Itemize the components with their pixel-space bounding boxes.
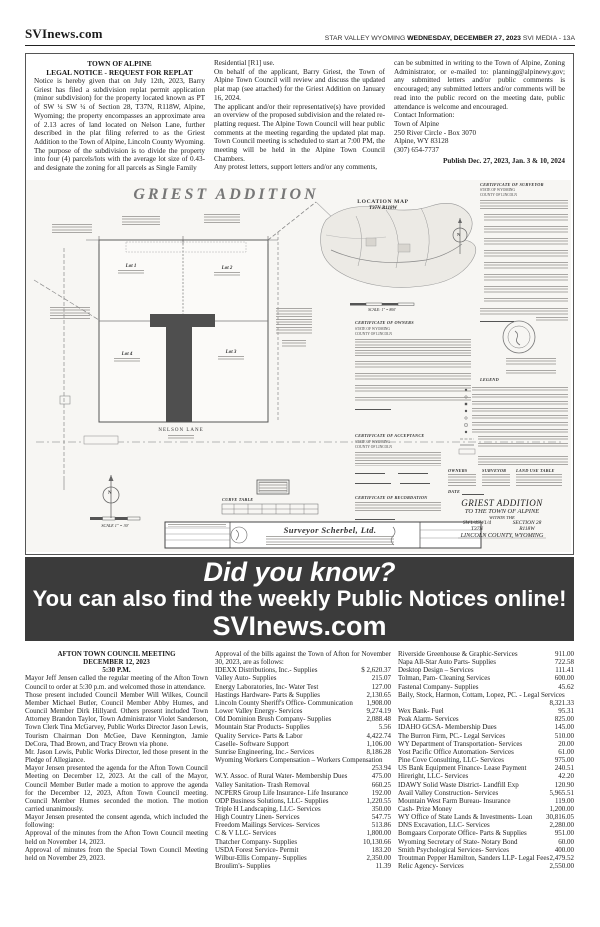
illegible-text-block <box>478 443 568 447</box>
bill-amount: 911.00 <box>555 650 574 658</box>
surveyor-firm-name: Surveyor Scherbel, Ltd. <box>250 525 410 535</box>
bill-payee: USDA Forest Service- Permit <box>215 846 298 854</box>
masthead-dateline: STAR VALLEY WYOMING WEDNESDAY, DECEMBER … <box>325 35 575 42</box>
bill-row: Napa All-Star Auto Parts- Supplies 722.5… <box>398 658 574 666</box>
masthead: SVInews.com STAR VALLEY WYOMING WEDNESDA… <box>25 22 575 46</box>
bill-payee: Hireright, LLC- Services <box>398 772 468 780</box>
bill-payee: Wilbur-Ellis Company- Supplies <box>215 854 307 862</box>
bill-amount: 975.00 <box>555 756 574 764</box>
bill-amount: 9,274.19 <box>367 707 392 715</box>
notice-col2-paragraphs: Residential [R1] use.On behalf of the ap… <box>214 59 385 172</box>
illegible-text-block <box>472 394 568 398</box>
bill-row: Smith Psychological Services- Services 4… <box>398 846 574 854</box>
bill-amount: 2,479.52 <box>550 854 575 862</box>
notice-paragraph: Residential [R1] use. <box>214 59 385 68</box>
bill-amount: 513.86 <box>372 821 391 829</box>
bills-column-2: Riverside Greenhouse & Graphic-Services … <box>398 650 574 920</box>
bill-row: IDAWY Solid Waste District- Landfill Exp… <box>398 781 574 789</box>
illegible-text-block <box>484 214 568 222</box>
bill-payee: Napa All-Star Auto Parts- Supplies <box>398 658 496 666</box>
date-label: DATE <box>448 489 460 494</box>
bill-payee: ODP Business Solutions, LLC- Supplies <box>215 797 329 805</box>
bill-row: USDA Forest Service- Permit 183.20 <box>215 846 391 854</box>
illegible-text-block <box>355 373 471 381</box>
bill-amount: 510.00 <box>555 732 574 740</box>
bill-payee: Baily, Stock, Harmon, Cottam, Lopez, PC.… <box>398 691 565 699</box>
bill-row: C & V LLC- Services 1,800.00 <box>215 829 391 837</box>
bill-row: Mountain Star Products- Supplies 5.56 <box>215 723 391 731</box>
minutes-paragraph: Those present included Council Member Wi… <box>25 691 208 748</box>
illegible-text-block <box>484 226 568 234</box>
bill-payee: WY Department of Transportation- Service… <box>398 740 522 748</box>
masthead-page-number: SVI MEDIA - 13A <box>521 35 575 42</box>
bill-amount: 253.94 <box>372 764 391 772</box>
illegible-text-block <box>506 370 556 375</box>
illegible-text-block <box>536 317 568 321</box>
bill-payee: Pine Cove Consulting, LLC- Services <box>398 756 504 764</box>
bill-amount: 1,908.00 <box>367 699 392 707</box>
bill-amount: 111.41 <box>555 666 574 674</box>
bill-payee: Old Dominion Brush Company- Supplies <box>215 715 331 723</box>
illegible-text-block <box>52 224 92 235</box>
illegible-text-block <box>218 356 244 361</box>
bill-amount: 10,130.66 <box>363 838 391 846</box>
notice-paragraph: The purpose of the subdivision is to div… <box>34 147 205 173</box>
bill-payee: IDEXX Distributions, Inc.- Supplies <box>215 666 317 674</box>
council-date: DECEMBER 12, 2023 <box>25 658 208 666</box>
bill-amount: 1,200.00 <box>550 805 575 813</box>
bill-amount: 215.07 <box>372 674 391 682</box>
bill-amount: 45.62 <box>558 683 574 691</box>
date-blank-line <box>462 493 484 495</box>
bill-row: Tolman, Pam- Cleaning Services 600.00 <box>398 674 574 682</box>
bill-row: The Burron Firm, PC.- Legal Services 510… <box>398 732 574 740</box>
bill-row: ODP Business Solutions, LLC- Supplies 1,… <box>215 797 391 805</box>
signature-line <box>398 472 428 474</box>
bill-payee: IDAWY Solid Waste District- Landfill Exp <box>398 781 519 789</box>
bill-amount: 350.00 <box>372 805 391 813</box>
bills-list-1: IDEXX Distributions, Inc.- Supplies $ 2,… <box>215 666 391 870</box>
bill-row: Baily, Stock, Harmon, Cottam, Lopez, PC.… <box>398 691 574 707</box>
bill-amount: 20.00 <box>558 740 574 748</box>
title-block-town: TO THE TOWN OF ALPINE <box>454 508 550 515</box>
bill-payee: Mountain West Farm Bureau- Insurance <box>398 797 510 805</box>
illegible-text-block <box>484 286 568 294</box>
bills-column-1: Approval of the bills against the Town o… <box>215 650 391 920</box>
bill-amount: 2,130.65 <box>367 691 392 699</box>
bill-row: US Bank Equipment Finance- Lease Payment… <box>398 764 574 772</box>
bill-row: Cash- Prize Money 1,200.00 <box>398 805 574 813</box>
illegible-text-block <box>355 385 471 393</box>
bill-amount: 547.75 <box>372 813 391 821</box>
illegible-text-block <box>259 482 287 492</box>
notice-paragraph: The applicant and/or their representativ… <box>214 103 385 164</box>
bill-row: Yost Pacific Office Automation- Services… <box>398 748 574 756</box>
bill-payee: Cash- Prize Money <box>398 805 452 813</box>
lot4-label: Lot 4 <box>114 352 140 357</box>
bill-row: Pine Cove Consulting, LLC- Services 975.… <box>398 756 574 764</box>
bill-row: Broulim's- Supplies 11.39 <box>215 862 391 870</box>
publish-dates: Publish Dec. 27, 2023, Jan. 3 & 10, 2024 <box>394 157 565 166</box>
bill-amount: 825.00 <box>555 715 574 723</box>
notice-paragraph: can be submitted in writing to the Town … <box>394 59 565 111</box>
bill-row: Caselle- Software Support 1,106.00 <box>215 740 391 748</box>
bills-list-2: Riverside Greenhouse & Graphic-Services … <box>398 650 574 870</box>
bill-payee: Hastings Hardware- Parts & Supplies <box>215 691 320 699</box>
location-map-township: T37N R118W <box>336 206 430 211</box>
bill-payee: Smith Psychological Services- Services <box>398 846 509 854</box>
minutes-paragraph: Mayor Jensen presented the consent agend… <box>25 813 208 829</box>
illegible-text-block <box>484 298 568 303</box>
bill-row: Bomgaars Corporate Office- Parts & Suppl… <box>398 829 574 837</box>
bill-payee: Valley Auto- Supplies <box>215 674 276 682</box>
illegible-text-block <box>484 274 568 282</box>
bill-amount: 951.00 <box>555 829 574 837</box>
bill-payee: Desktop Design – Services <box>398 666 474 674</box>
bill-amount: 240.51 <box>555 764 574 772</box>
lot1-label: Lot 1 <box>118 264 144 269</box>
bill-row: WY Department of Transportation- Service… <box>398 740 574 748</box>
illegible-text-block <box>448 474 476 486</box>
bill-row: Wex Bank- Fuel 95.31 <box>398 707 574 715</box>
bill-row: DNS Excavation, LLC- Services 2,280.00 <box>398 821 574 829</box>
illegible-text-block <box>516 474 562 486</box>
bill-payee: W.Y. Assoc. of Rural Water- Membership D… <box>215 772 347 780</box>
lot3-label: Lot 3 <box>218 350 244 355</box>
certificate-of-acceptance-heading: CERTIFICATE OF ACCEPTANCE <box>355 433 424 438</box>
bill-amount: 600.00 <box>555 674 574 682</box>
bill-amount: 60.00 <box>558 838 574 846</box>
bill-amount: 722.58 <box>555 658 574 666</box>
nelson-lane-label: NELSON LANE <box>144 428 218 433</box>
certificate-of-recordation-heading: CERTIFICATE OF RECORDATION <box>355 495 427 500</box>
owners-label: OWNERS <box>448 468 467 473</box>
north-letter-location: N <box>457 232 460 237</box>
illegible-text-block <box>355 339 471 357</box>
plat-map: GRIEST ADDITION Lot 1 Lot 2 Lot 3 Lot 4 … <box>26 180 571 552</box>
bill-amount: 1,800.00 <box>367 829 392 837</box>
council-time: 5:30 P.M. <box>25 666 208 674</box>
signature-line <box>355 518 395 520</box>
minutes-paragraph: Mayor Jeff Jensen called the regular mee… <box>25 674 208 690</box>
bill-payee: High Country Linen- Services <box>215 813 300 821</box>
bill-row: NCPERS Group Life Insurance- Life Insura… <box>215 789 391 797</box>
bill-row: Wyoming Secretary of State- Notary Bond … <box>398 838 574 846</box>
bill-amount: 4,422.74 <box>367 732 392 740</box>
legal-notice-box: TOWN OF ALPINE LEGAL NOTICE - REQUEST FO… <box>25 53 574 555</box>
illegible-text-block <box>282 340 306 348</box>
certificate-of-owners-heading: CERTIFICATE OF OWNERS <box>355 320 414 325</box>
certificate-of-surveyor-heading: CERTIFICATE OF SURVEYOR <box>480 182 544 187</box>
bill-row: Troutman Pepper Hamilton, Sanders LLP- L… <box>398 854 574 862</box>
bill-payee: Lincoln County Sheriff's Office- Communi… <box>215 699 353 707</box>
bill-payee: DNS Excavation, LLC- Services <box>398 821 490 829</box>
notice-column-3: can be submitted in writing to the Town … <box>394 59 565 173</box>
minutes-paragraph: Approval of the minutes from the Afton T… <box>25 829 208 845</box>
bill-row: Relic Agency- Services 2,550.00 <box>398 862 574 870</box>
newspaper-page: SVInews.com STAR VALLEY WYOMING WEDNESDA… <box>0 0 600 927</box>
bill-amount: 192.00 <box>372 789 391 797</box>
bill-payee: NCPERS Group Life Insurance- Life Insura… <box>215 789 348 797</box>
bill-row: Fastenal Company- Supplies 45.62 <box>398 683 574 691</box>
illegible-text-block <box>204 214 240 225</box>
bill-row: Wilbur-Ellis Company- Supplies 2,350.00 <box>215 854 391 862</box>
county-of-lincoln-label: COUNTY OF LINCOLN <box>480 193 517 197</box>
signature-line <box>355 472 385 474</box>
illegible-text-block <box>214 272 240 277</box>
bill-row: Lincoln County Sheriff's Office- Communi… <box>215 699 391 707</box>
bill-row: Energy Laboratories, Inc- Water Test 127… <box>215 683 391 691</box>
illegible-text-block <box>118 270 144 275</box>
bill-row: Peak Alarm- Services 825.00 <box>398 715 574 723</box>
bill-payee: Wex Bank- Fuel <box>398 707 444 715</box>
curve-table-heading: CURVE TABLE <box>222 497 253 502</box>
state-of-wyoming-label: STATE OF WYOMING <box>480 188 515 192</box>
masthead-region: STAR VALLEY WYOMING <box>325 35 407 42</box>
bill-payee: Quality Service- Parts & Labor <box>215 732 302 740</box>
contact-line: Town of Alpine <box>394 120 565 129</box>
bill-row: W.Y. Assoc. of Rural Water- Membership D… <box>215 772 391 780</box>
illegible-text-block <box>168 524 226 527</box>
bill-payee: Lower Valley Energy- Services <box>215 707 302 715</box>
title-block-county: LINCOLN COUNTY, WYOMING <box>454 532 550 539</box>
bill-amount: 660.25 <box>372 781 391 789</box>
bill-payee: Valley Sanitation- Trash Removal <box>215 781 310 789</box>
council-title: AFTON TOWN COUNCIL MEETING <box>25 650 208 658</box>
bill-amount: 119.00 <box>555 797 574 805</box>
council-minutes-section: AFTON TOWN COUNCIL MEETING DECEMBER 12, … <box>25 650 574 920</box>
bill-row: Riverside Greenhouse & Graphic-Services … <box>398 650 574 658</box>
bill-row: High Country Linen- Services 547.75 <box>215 813 391 821</box>
bill-row: IDAHO GCSA- Membership Dues 145.00 <box>398 723 574 731</box>
notice-paragraph: Any protest letters, support letters and… <box>214 163 385 172</box>
bill-amount: 8,321.33 <box>550 699 575 707</box>
plat-title: GRIEST ADDITION <box>126 186 326 204</box>
county-of-lincoln-label: COUNTY OF LINCOLN <box>355 445 392 449</box>
notice-paragraph: On behalf of the applicant, Barry Griest… <box>214 68 385 103</box>
illegible-text-block <box>506 358 556 366</box>
bill-amount: 8,186.28 <box>367 748 392 756</box>
illegible-text-block <box>266 536 394 545</box>
bill-amount: $ 2,620.37 <box>361 666 391 674</box>
signature-line <box>355 408 391 410</box>
illegible-text-block <box>478 456 568 466</box>
bill-row: Avail Valley Construction- Services 5,96… <box>398 789 574 797</box>
illegible-text-block <box>478 436 568 440</box>
plat-linework <box>26 180 571 552</box>
contact-info: Contact Information:Town of Alpine250 Ri… <box>394 111 565 155</box>
bill-payee: Freedom Mailings Services- Services <box>215 821 320 829</box>
notice-col1-paragraphs: Notice is hereby given that on July 12th… <box>34 77 205 173</box>
illegible-text-block <box>472 415 568 419</box>
signature-line <box>400 482 430 484</box>
contact-line: 250 River Circle - Box 3070 <box>394 129 565 138</box>
illegible-text-block <box>472 422 568 426</box>
bill-amount: 2,350.00 <box>367 854 392 862</box>
contact-line: Contact Information: <box>394 111 565 120</box>
main-scale-label: SCALE 1" = 30' <box>84 523 146 528</box>
state-of-wyoming-label: STATE OF WYOMING <box>355 440 390 444</box>
minutes-paragraph: Mayor Jensen presented the agenda for th… <box>25 764 208 813</box>
bill-payee: Fastenal Company- Supplies <box>398 683 479 691</box>
bill-row: Old Dominion Brush Company- Supplies 2,0… <box>215 715 391 723</box>
bill-amount: 475.00 <box>372 772 391 780</box>
bill-payee: Sunrise Engineering, Inc.- Services <box>215 748 314 756</box>
illegible-text-block <box>480 308 568 316</box>
illegible-text-block <box>482 474 510 486</box>
minutes-paragraphs: Mayor Jeff Jensen called the regular mee… <box>25 674 208 862</box>
bill-row: Sunrise Engineering, Inc.- Services 8,18… <box>215 748 391 756</box>
masthead-date: WEDNESDAY, DECEMBER 27, 2023 <box>407 35 521 42</box>
bills-intro: Approval of the bills against the Town o… <box>215 650 391 666</box>
bill-row: Desktop Design – Services 111.41 <box>398 666 574 674</box>
minutes-paragraph: Approval of minutes from the Special Tow… <box>25 846 208 862</box>
bill-row: IDEXX Distributions, Inc.- Supplies $ 2,… <box>215 666 391 674</box>
bill-row: Hastings Hardware- Parts & Supplies 2,13… <box>215 691 391 699</box>
notice-title-line1: TOWN OF ALPINE <box>34 59 205 68</box>
bill-amount: 1,106.00 <box>367 740 392 748</box>
bill-amount: 5.56 <box>379 723 391 731</box>
banner-subline: You can also find the weekly Public Noti… <box>25 587 574 611</box>
bill-payee: IDAHO GCSA- Membership Dues <box>398 723 497 731</box>
legal-notice-text: TOWN OF ALPINE LEGAL NOTICE - REQUEST FO… <box>26 54 573 173</box>
bill-amount: 5,965.51 <box>550 789 575 797</box>
illegible-text-block <box>168 435 194 439</box>
illegible-text-block <box>480 200 568 210</box>
illegible-text-block <box>472 408 568 412</box>
bill-payee: WY Office of State Lands & Investments- … <box>398 813 532 821</box>
bill-payee: Tolman, Pam- Cleaning Services <box>398 674 490 682</box>
notice-column-2: Residential [R1] use.On behalf of the ap… <box>214 59 385 173</box>
bill-amount: 11.39 <box>376 862 392 870</box>
public-notices-banner: Did you know? You can also find the week… <box>25 557 574 641</box>
illegible-text-block <box>276 308 312 334</box>
bill-row: Hireright, LLC- Services 42.20 <box>398 772 574 780</box>
bill-amount: 145.00 <box>555 723 574 731</box>
banner-url: SVInews.com <box>25 612 574 640</box>
illegible-text-block <box>355 502 441 512</box>
bill-row: Thatcher Company- Supplies 10,130.66 <box>215 838 391 846</box>
bill-amount: 61.00 <box>558 748 574 756</box>
notice-paragraph: Notice is hereby given that on July 12th… <box>34 77 205 147</box>
illegible-text-block <box>355 397 471 402</box>
bill-amount: 2,550.00 <box>550 862 575 870</box>
bill-payee: Energy Laboratories, Inc- Water Test <box>215 683 318 691</box>
bill-payee: Mountain Star Products- Supplies <box>215 723 310 731</box>
bill-amount: 95.31 <box>558 707 574 715</box>
bill-row: Quality Service- Parts & Labor 4,422.74 <box>215 732 391 740</box>
bill-row: Valley Auto- Supplies 215.07 <box>215 674 391 682</box>
illegible-text-block <box>122 216 160 227</box>
bill-payee: US Bank Equipment Finance- Lease Payment <box>398 764 527 772</box>
minutes-paragraph: Mr. Jason Lewis, Public Works Director, … <box>25 748 208 764</box>
bill-payee: Thatcher Company- Supplies <box>215 838 297 846</box>
lot2-label: Lot 2 <box>214 266 240 271</box>
illegible-text-block <box>472 429 568 433</box>
illegible-text-block <box>355 361 471 369</box>
bill-payee: Wyoming Workers Compensation – Workers C… <box>215 756 383 764</box>
illegible-text-block <box>472 401 568 405</box>
title-block-name: GRIEST ADDITION <box>454 498 550 508</box>
contact-line: (307) 654-7737 <box>394 146 565 155</box>
bill-amount: 183.20 <box>372 846 391 854</box>
bill-payee: C & V LLC- Services <box>215 829 276 837</box>
contact-line: Alpine, WY 83128 <box>394 137 565 146</box>
bill-amount: 400.00 <box>555 846 574 854</box>
bill-amount: 120.90 <box>555 781 574 789</box>
minutes-column: AFTON TOWN COUNCIL MEETING DECEMBER 12, … <box>25 650 208 920</box>
signature-line <box>355 482 391 484</box>
bill-row: Mountain West Farm Bureau- Insurance 119… <box>398 797 574 805</box>
bill-row: Lower Valley Energy- Services 9,274.19 <box>215 707 391 715</box>
notice-title-line2: LEGAL NOTICE - REQUEST FOR REPLAT <box>34 68 205 77</box>
bill-row: Freedom Mailings Services- Services 513.… <box>215 821 391 829</box>
bill-amount: 127.00 <box>372 683 391 691</box>
illegible-text-block <box>484 262 568 270</box>
bill-payee: Bomgaars Corporate Office- Parts & Suppl… <box>398 829 527 837</box>
bill-amount: 1,220.55 <box>367 797 392 805</box>
bill-payee: Avail Valley Construction- Services <box>398 789 498 797</box>
signature-line <box>480 320 514 322</box>
bill-row: Wyoming Workers Compensation – Workers C… <box>215 756 391 772</box>
illegible-text-block <box>50 307 90 319</box>
bill-payee: Broulim's- Supplies <box>215 862 271 870</box>
north-letter-main: N <box>108 491 112 496</box>
bill-payee: Peak Alarm- Services <box>398 715 459 723</box>
bill-payee: The Burron Firm, PC.- Legal Services <box>398 732 505 740</box>
location-map-title: LOCATION MAP <box>336 199 430 205</box>
surveyor-label: SURVEYOR <box>482 468 506 473</box>
bill-payee: Triple H Landscaping, LLC- Services <box>215 805 321 813</box>
illegible-text-block <box>472 387 568 391</box>
state-of-wyoming-label: STATE OF WYOMING <box>355 327 390 331</box>
bill-row: Triple H Landscaping, LLC- Services 350.… <box>215 805 391 813</box>
location-map-scale: SCALE: 1" = 800' <box>344 308 420 312</box>
land-use-table-label: LAND USE TABLE <box>516 468 555 473</box>
illegible-text-block <box>484 250 568 258</box>
illegible-text-block <box>484 238 568 246</box>
bill-payee: Caselle- Software Support <box>215 740 289 748</box>
illegible-text-block <box>355 452 441 466</box>
bill-payee: Relic Agency- Services <box>398 862 464 870</box>
bill-payee: Troutman Pepper Hamilton, Sanders LLP- L… <box>398 854 549 862</box>
bill-amount: 30,816.05 <box>546 813 574 821</box>
bill-amount: 2,280.00 <box>550 821 575 829</box>
bill-row: Valley Sanitation- Trash Removal 660.25 <box>215 781 391 789</box>
brand-logo: SVInews.com <box>25 26 103 42</box>
notice-column-1: TOWN OF ALPINE LEGAL NOTICE - REQUEST FO… <box>34 59 205 173</box>
banner-headline: Did you know? <box>25 558 574 586</box>
bill-amount: 42.20 <box>558 772 574 780</box>
bill-amount: 2,088.48 <box>367 715 392 723</box>
county-of-lincoln-label: COUNTY OF LINCOLN <box>355 332 392 336</box>
bill-payee: Riverside Greenhouse & Graphic-Services <box>398 650 518 658</box>
bill-payee: Yost Pacific Office Automation- Services <box>398 748 514 756</box>
bill-payee: Wyoming Secretary of State- Notary Bond <box>398 838 518 846</box>
illegible-text-block <box>114 358 140 363</box>
bill-row: WY Office of State Lands & Investments- … <box>398 813 574 821</box>
legend-heading: LEGEND <box>480 377 499 382</box>
